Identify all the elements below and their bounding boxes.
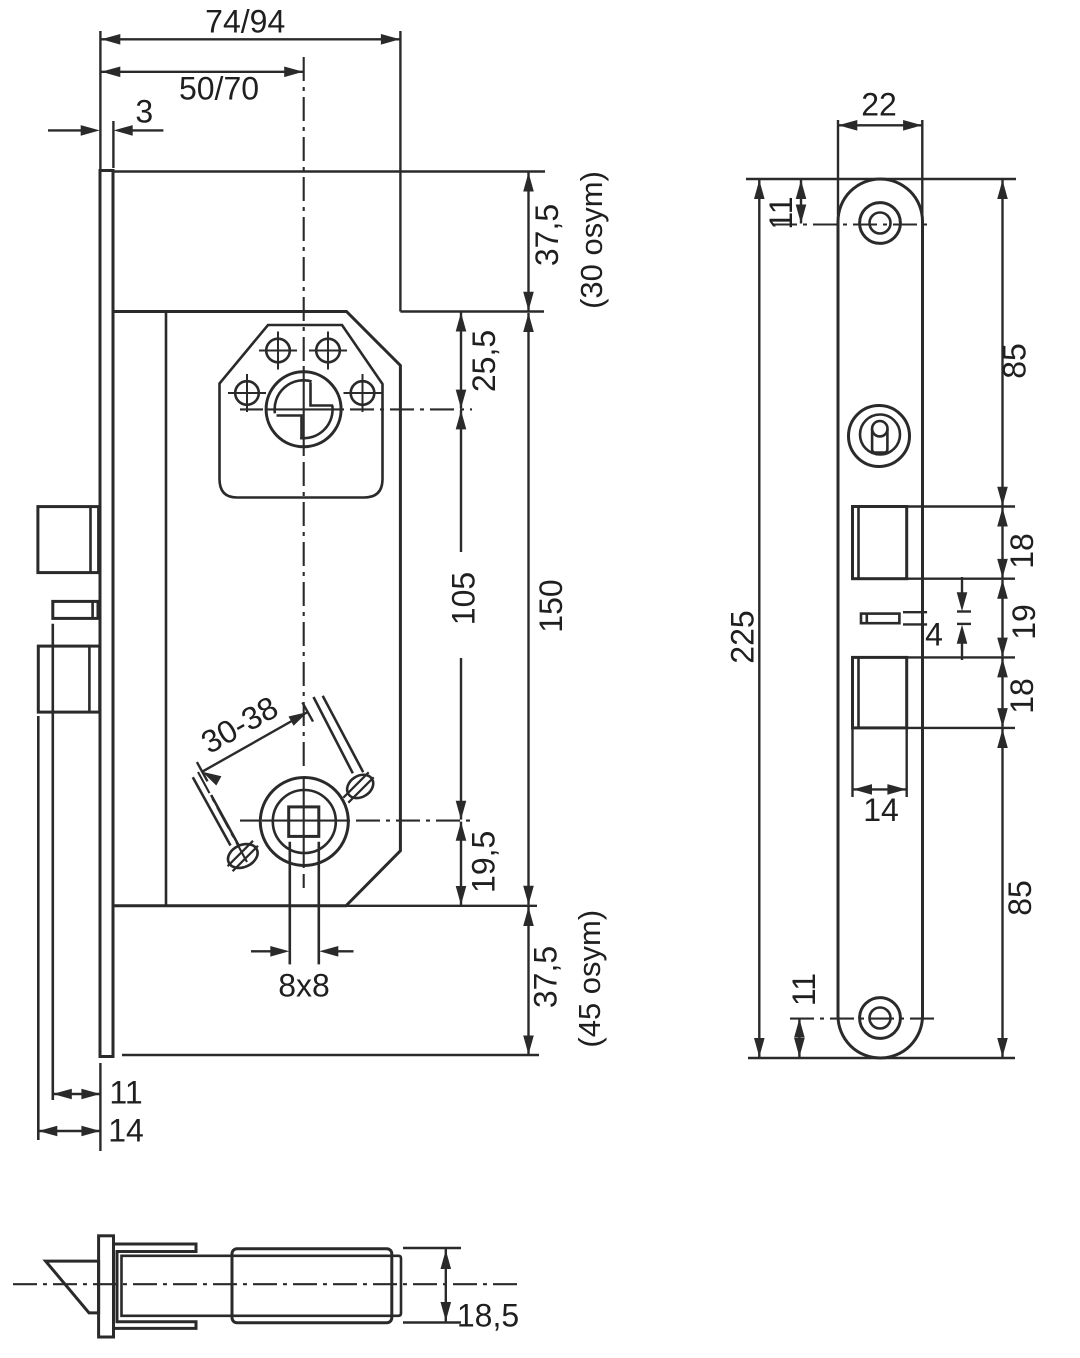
svg-text:(45 osym): (45 osym) (572, 910, 607, 1048)
svg-text:225: 225 (725, 610, 761, 663)
svg-text:(30 osym): (30 osym) (574, 171, 609, 309)
svg-text:3: 3 (135, 94, 153, 130)
svg-text:50/70: 50/70 (179, 71, 259, 107)
svg-text:18: 18 (1004, 678, 1040, 714)
svg-text:14: 14 (108, 1113, 144, 1149)
svg-text:105: 105 (446, 572, 482, 625)
svg-text:74/94: 74/94 (205, 4, 285, 40)
svg-text:37,5: 37,5 (527, 946, 563, 1008)
svg-text:11: 11 (109, 1075, 142, 1111)
svg-text:22: 22 (861, 86, 897, 122)
svg-text:8x8: 8x8 (278, 968, 330, 1004)
svg-text:150: 150 (533, 579, 569, 632)
svg-text:85: 85 (1002, 880, 1038, 916)
svg-text:19: 19 (1006, 604, 1042, 640)
svg-text:25,5: 25,5 (466, 330, 502, 392)
svg-text:14: 14 (863, 792, 899, 828)
svg-text:18: 18 (1004, 533, 1040, 569)
svg-text:19,5: 19,5 (465, 831, 501, 893)
svg-text:37,5: 37,5 (529, 204, 565, 266)
svg-text:11: 11 (786, 973, 822, 1006)
svg-text:11: 11 (763, 196, 799, 229)
svg-text:4: 4 (925, 617, 943, 653)
svg-text:18,5: 18,5 (457, 1297, 519, 1333)
svg-text:85: 85 (997, 343, 1033, 379)
